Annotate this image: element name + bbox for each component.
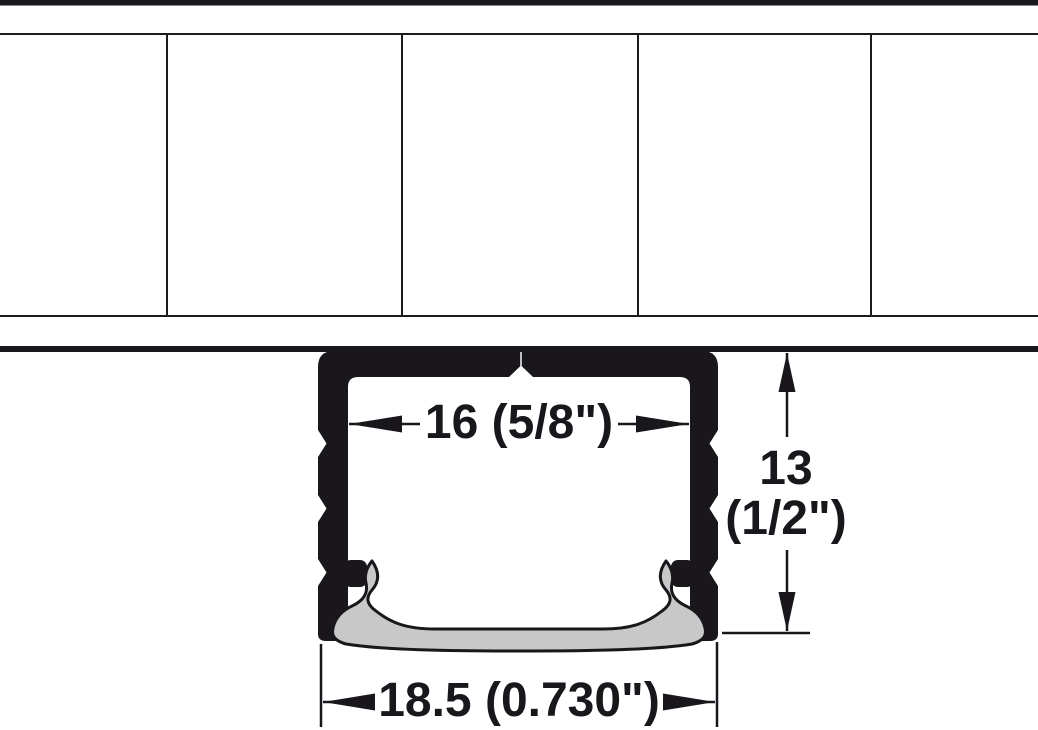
arrow-up-icon bbox=[779, 353, 796, 392]
arrow-left-icon bbox=[323, 694, 375, 711]
clip-ledge-right bbox=[671, 560, 694, 587]
height-unit: (1/2") bbox=[725, 494, 846, 544]
profile-dimension-diagram: 16 (5/8") 13 (1/2") 18.5 (0.730") bbox=[0, 0, 1038, 730]
arrow-down-icon bbox=[779, 592, 796, 631]
clip-ledge-left bbox=[344, 560, 367, 587]
arrow-right-icon bbox=[663, 694, 715, 711]
panel-structure bbox=[0, 0, 1038, 352]
height-label: 13 (1/2") bbox=[725, 444, 846, 544]
panel-top-thick-line bbox=[0, 0, 1038, 6]
technical-drawing bbox=[0, 0, 1038, 730]
inner-width-label: 16 (5/8") bbox=[425, 398, 613, 448]
height-value: 13 bbox=[725, 444, 846, 494]
outer-width-label: 18.5 (0.730") bbox=[378, 676, 660, 726]
